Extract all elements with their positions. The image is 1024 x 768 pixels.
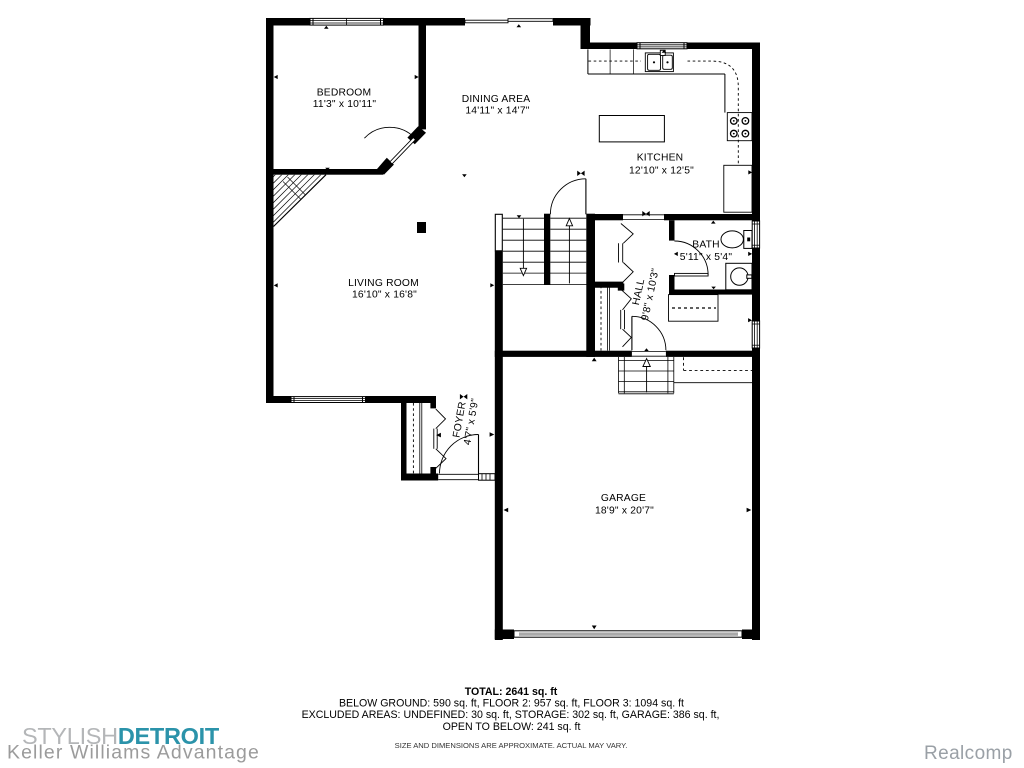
svg-text:LIVING ROOM: LIVING ROOM	[348, 278, 419, 289]
svg-text:OPEN TO BELOW: 241 sq. ft: OPEN TO BELOW: 241 sq. ft	[443, 721, 581, 733]
svg-text:5'11" x 5'4": 5'11" x 5'4"	[680, 252, 733, 263]
svg-text:16'10" x 16'8": 16'10" x 16'8"	[352, 290, 417, 301]
svg-text:GARAGE: GARAGE	[601, 493, 646, 504]
svg-text:SIZE AND DIMENSIONS ARE APPROX: SIZE AND DIMENSIONS ARE APPROXIMATE. ACT…	[395, 741, 628, 750]
svg-text:BEDROOM: BEDROOM	[317, 88, 372, 99]
svg-text:11'3" x 10'11": 11'3" x 10'11"	[313, 99, 377, 110]
svg-text:12'10" x 12'5": 12'10" x 12'5"	[629, 165, 694, 176]
svg-text:DINING AREA: DINING AREA	[462, 94, 531, 105]
svg-text:14'11" x 14'7": 14'11" x 14'7"	[465, 106, 529, 117]
svg-text:BELOW GROUND: 590 sq. ft, FLOO: BELOW GROUND: 590 sq. ft, FLOOR 2: 957 s…	[339, 697, 684, 709]
svg-text:BATH: BATH	[692, 240, 720, 251]
svg-text:18'9" x 20'7": 18'9" x 20'7"	[595, 506, 654, 517]
svg-text:KITCHEN: KITCHEN	[637, 152, 684, 163]
svg-text:EXCLUDED AREAS: UNDEFINED: 30: EXCLUDED AREAS: UNDEFINED: 30 sq. ft, ST…	[302, 709, 720, 721]
svg-text:Realcomp: Realcomp	[924, 743, 1013, 764]
svg-text:TOTAL: 2641 sq. ft: TOTAL: 2641 sq. ft	[465, 686, 558, 698]
svg-text:Keller Williams Advantage: Keller Williams Advantage	[7, 742, 260, 764]
